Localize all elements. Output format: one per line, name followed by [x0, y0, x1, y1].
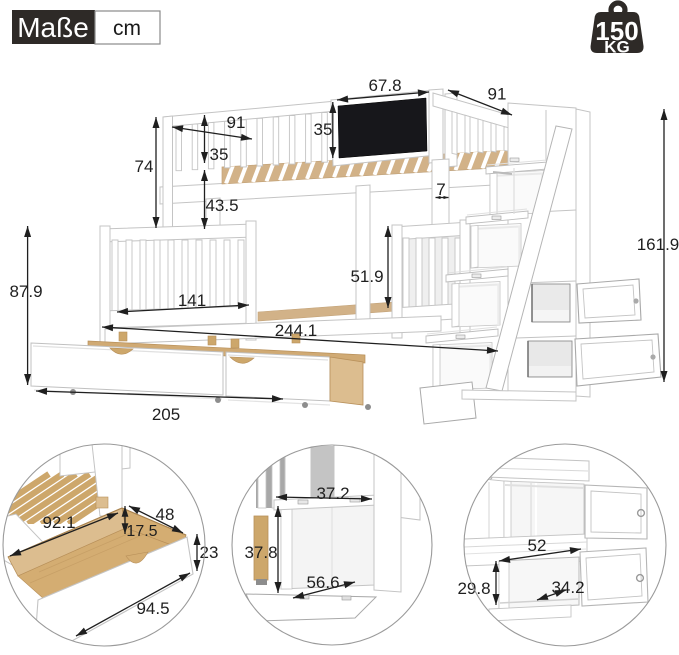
svg-text:52: 52	[528, 536, 547, 555]
svg-text:87.9: 87.9	[9, 282, 42, 301]
svg-text:35: 35	[314, 120, 333, 139]
svg-text:34.2: 34.2	[551, 578, 584, 597]
svg-text:48: 48	[156, 505, 175, 524]
svg-text:91: 91	[488, 85, 507, 104]
svg-text:23: 23	[200, 543, 219, 562]
svg-text:7: 7	[436, 180, 445, 199]
svg-text:37.8: 37.8	[244, 543, 277, 562]
svg-text:141: 141	[178, 291, 206, 310]
svg-text:94.5: 94.5	[136, 599, 169, 618]
svg-text:244.1: 244.1	[275, 321, 318, 340]
svg-text:cm: cm	[113, 17, 141, 40]
svg-text:67.8: 67.8	[368, 76, 401, 95]
svg-text:35: 35	[210, 145, 229, 164]
svg-text:KG: KG	[604, 38, 630, 57]
svg-text:51.9: 51.9	[350, 267, 383, 286]
svg-text:161.9: 161.9	[637, 235, 679, 254]
svg-text:37.2: 37.2	[316, 484, 349, 503]
svg-text:205: 205	[152, 405, 180, 424]
svg-text:74: 74	[135, 157, 154, 176]
svg-text:56.6: 56.6	[306, 573, 339, 592]
svg-text:17.5: 17.5	[126, 523, 157, 540]
svg-text:Maße: Maße	[17, 12, 89, 43]
svg-text:92.1: 92.1	[42, 513, 75, 532]
svg-text:91: 91	[227, 113, 246, 132]
svg-text:43.5: 43.5	[205, 196, 238, 215]
